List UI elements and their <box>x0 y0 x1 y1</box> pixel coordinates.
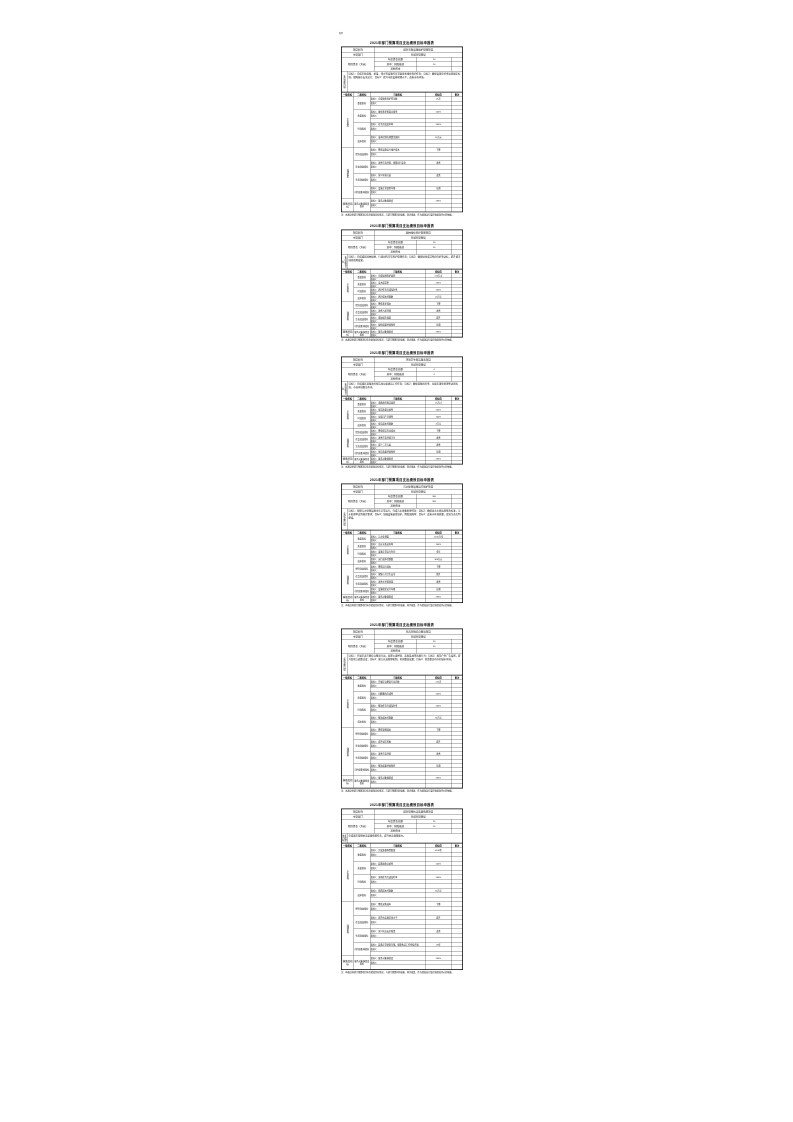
indicator-group: 时效指标指标1：任务完成及时率100%指标2： <box>354 123 463 136</box>
indicator-group: 可持续影响指标指标1：绿化成果持续保持长期指标2： <box>354 323 463 330</box>
group-label: 成本指标 <box>354 422 371 429</box>
group-rows: 指标1：整治任务完成及时率100%指标2： <box>370 704 462 716</box>
goal-section: 年度总体目标目标1：完成市政道路、桥梁、排水等设施的日常巡查和维修养护任务；目标… <box>342 72 463 93</box>
document-page: { "page": { "corner_mark": "附5" }, "comm… <box>0 0 793 1122</box>
group-rows: 指标1：降低运行成本下降指标2： <box>370 565 462 573</box>
group-label: 质量指标 <box>354 408 371 415</box>
group-rows: 指标1：提升执法规范化水平提升指标2： <box>370 916 462 930</box>
level1-section: 效益指标经济效益指标指标1：降低运行成本下降指标2：社会效益指标指标1：保障公共… <box>342 565 463 595</box>
group-label: 生态效益指标 <box>354 580 371 588</box>
group-label: 可持续影响指标 <box>354 186 371 199</box>
level1-section: 产出指标数量指标指标1：完成装备购置数量≥100件指标2：质量指标指标1：装备验… <box>342 848 463 902</box>
indicator-group: 数量指标指标1：完成维修养护任务数≥1次指标2： <box>354 97 463 110</box>
level1-label: 满意度指标 <box>342 776 354 788</box>
level1-label: 满意度指标 <box>342 457 354 464</box>
group-rows: 指标1：成本控制在预算范围内50万元指标2： <box>370 135 462 148</box>
indicator-text-empty <box>370 784 425 788</box>
indicator-group: 成本指标指标1：养护成本控制数20万元指标2： <box>354 295 463 302</box>
group-rows: 指标1：改善市容环境改善指标2： <box>370 752 462 764</box>
level1-section: 满意度指标服务对象满意度指标指标1：服务对象满意度≥95%指标2： <box>342 330 463 337</box>
indicator-group: 经济效益指标指标1：降低采购成本下降指标2： <box>354 902 463 916</box>
group-rows: 指标1：完成绿地养护面积≥10万㎡指标2： <box>370 274 462 281</box>
group-label: 经济效益指标 <box>354 302 371 309</box>
indicator-group: 服务对象满意度指标指标1：服务对象满意度≥95%指标2： <box>354 457 463 464</box>
indicator-group: 时效指标指标1：采购任务完成及时率100%指标2： <box>354 875 463 889</box>
level1-section: 产出指标数量指标指标1：污水处理量≥100万吨指标2：质量指标指标1：出水水质达… <box>342 535 463 565</box>
group-label: 可持续影响指标 <box>354 764 371 776</box>
indicator-text-empty <box>370 965 425 970</box>
table-footnote: 注：本表反映部门预算项目年度绩效目标情况，与部门预算同步编报、同步批复，作为绩效… <box>341 338 463 341</box>
declaration-table: 项目名称环境卫生保洁服务项目主管部门市城市管理局项目资金（万元）年度资金总额4其… <box>341 357 463 465</box>
indicator-row <box>370 208 462 212</box>
indicator-group: 数量指标指标1：完成装备购置数量≥100件指标2： <box>354 848 463 862</box>
group-label: 生态效益指标 <box>354 316 371 323</box>
group-rows: 指标1：整治成本控制数30万元指标2： <box>370 716 462 728</box>
goal-text: 目标1：完成城区道路清扫保洁和垃圾清运工作任务；目标2：确保道路机扫率、垃圾无害… <box>347 382 462 397</box>
group-rows: 指标1：服务对象满意度≥95%指标2： <box>370 595 462 603</box>
group-label: 数量指标 <box>354 97 371 110</box>
level1-label: 满意度指标 <box>342 199 354 212</box>
indicator-group: 生态效益指标指标1：改善市容环境改善指标2： <box>354 752 463 764</box>
group-label: 质量指标 <box>354 110 371 123</box>
group-label: 质量指标 <box>354 862 371 876</box>
level1-section: 产出指标数量指标指标1：开展综合整治行动次数≥12次指标2：质量指标指标1：问题… <box>342 680 463 728</box>
goal-text: 完成城市管理执法装备购置任务，提升执法保障能力。 <box>347 834 462 844</box>
indicator-group: 服务对象满意度指标指标1：服务对象满意度100%指标2： <box>354 956 463 970</box>
indicator-group: 质量指标指标1：出水水质达标率100%指标2： <box>354 543 463 551</box>
table-footnote: 注：本表反映部门预算项目年度绩效目标情况，与部门预算同步编报、同步批复，作为绩效… <box>341 971 463 974</box>
indicator-group: 可持续影响指标指标1：设施稳定运行年限长期指标2： <box>354 588 463 596</box>
group-label: 服务对象满意度指标 <box>354 199 371 212</box>
indicator-group: 时效指标指标1：垃圾日产日清率100%指标2： <box>354 415 463 422</box>
indicator-group: 可持续影响指标指标1：装备正常使用年限，保障执法工作持续开展≥8年指标2： <box>354 943 463 957</box>
group-column: 数量指标指标1：完成维修养护任务数≥1次指标2：质量指标指标1：维修养护质量合格… <box>354 97 463 148</box>
indicator-group: 质量指标指标1：维修养护质量合格率100%指标2： <box>354 110 463 123</box>
group-rows: 指标1：维修养护质量合格率100%指标2： <box>370 110 462 123</box>
group-label: 成本指标 <box>354 295 371 302</box>
indicator2-text: 指标2： <box>370 334 425 338</box>
fund-rows: 年度资金总额30其中：财政拨款30其他资金 <box>374 639 462 653</box>
group-rows: 指标1：完成装备购置数量≥100件指标2： <box>370 848 462 862</box>
group-rows: 指标1：减少环境污染改善指标2： <box>370 174 462 187</box>
group-rows: 指标1：保洁质量合格率100%指标2： <box>370 408 462 415</box>
group-rows: 指标1：提升城市形象提升指标2： <box>370 740 462 752</box>
indicator-group: 社会效益指标指标1：改善人居环境改善指标2： <box>354 309 463 316</box>
group-rows: 指标1：设施正常运行时间全年指标2： <box>370 550 462 558</box>
group-label: 社会效益指标 <box>354 309 371 316</box>
group-rows: 指标1：增加城市绿量提升指标2： <box>370 316 462 323</box>
group-label: 社会效益指标 <box>354 573 371 581</box>
group-rows: 指标1：出水水质达标率100%指标2： <box>370 543 462 551</box>
group-label: 数量指标 <box>354 535 371 543</box>
group-label: 质量指标 <box>354 543 371 551</box>
group-column: 数量指标指标1：污水处理量≥100万吨指标2：质量指标指标1：出水水质达标率10… <box>354 535 463 565</box>
indicator-group: 社会效益指标指标1：改善市容环境、保障出行安全改善指标2： <box>354 161 463 174</box>
indicator-group: 质量指标指标1：苗木成活率≥95%指标2： <box>354 281 463 288</box>
group-rows: 指标1：减少执法安全隐患改善指标2： <box>370 929 462 943</box>
group-label: 质量指标 <box>354 692 371 704</box>
group-label: 经济效益指标 <box>354 148 371 161</box>
fund-section: 项目资金（万元）年度资金总额50其中：财政拨款50其他资金 <box>342 819 463 833</box>
fund-rows: 年度资金总额300其中：财政拨款300其他资金 <box>374 494 462 508</box>
indicator2-text: 指标2： <box>370 599 425 603</box>
indicator-group: 数量指标指标1：完成绿地养护面积≥10万㎡指标2： <box>354 274 463 281</box>
fund-label: 项目资金（万元） <box>342 57 375 71</box>
group-label: 数量指标 <box>354 848 371 862</box>
group-rows: 指标1：降低养护成本下降指标2： <box>370 302 462 309</box>
group-label: 服务对象满意度指标 <box>354 330 371 337</box>
group-rows: 指标1：完成维修养护任务数≥1次指标2： <box>370 97 462 110</box>
level1-label: 效益指标 <box>342 902 354 956</box>
group-label: 经济效益指标 <box>354 565 371 573</box>
group-label: 数量指标 <box>354 680 371 692</box>
goal-section: 年度总体目标目标1：开展市容市貌综合整治行动，治理占道经营、乱贴乱画等违规行为；… <box>342 654 463 676</box>
group-column: 服务对象满意度指标指标1：服务对象满意度≥95%指标2： <box>354 776 463 788</box>
group-rows: 指标1：装备正常使用年限，保障执法工作持续开展≥8年指标2： <box>370 943 462 957</box>
fund-rows: 年度资金总额20其中：财政拨款20其他资金 <box>374 240 462 254</box>
indicator-group: 成本指标指标1：成本控制在预算范围内50万元指标2： <box>354 135 463 148</box>
group-rows: 指标1：保洁成本控制数4万元指标2： <box>370 422 462 429</box>
group-label: 成本指标 <box>354 558 371 566</box>
group-rows: 指标1：设施稳定运行年限长期指标2： <box>370 588 462 596</box>
level1-section: 效益指标经济效益指标指标1：降低养护成本下降指标2：社会效益指标指标1：改善人居… <box>342 302 463 330</box>
goal-section: 年度总体目标目标1：保障污水处理设施全年正常运行，完成污水收集处理任务；目标2：… <box>342 509 463 531</box>
indicator-group: 生态效益指标指标1：减少执法安全隐患改善指标2： <box>354 929 463 943</box>
indicator-group: 经济效益指标指标1：降低养护成本下降指标2： <box>354 302 463 309</box>
group-label: 社会效益指标 <box>354 740 371 752</box>
level1-label: 产出指标 <box>342 97 354 148</box>
fund-label: 项目资金（万元） <box>342 494 375 508</box>
level1-label: 满意度指标 <box>342 956 354 970</box>
group-column: 经济效益指标指标1：降低采购成本下降指标2：社会效益指标指标1：提升执法规范化水… <box>354 902 463 956</box>
group-label: 生态效益指标 <box>354 443 371 450</box>
group-label: 生态效益指标 <box>354 929 371 943</box>
indicator-text-empty <box>370 208 425 212</box>
level1-label: 满意度指标 <box>342 595 354 603</box>
level1-label: 效益指标 <box>342 302 354 330</box>
indicator-row: 指标2： <box>370 334 462 338</box>
group-label: 时效指标 <box>354 415 371 422</box>
indicator-group: 服务对象满意度指标指标1：服务对象满意度≥95%指标2： <box>354 199 463 212</box>
group-rows: 指标1：开展综合整治行动次数≥12次指标2： <box>370 680 462 692</box>
table-block: 2021年部门预算项目支出绩效目标申报表项目名称城市市政设施维护管理项目主管部门… <box>341 40 463 216</box>
declaration-table: 项目名称城市管理执法装备购置项目主管部门市城市管理局项目资金（万元）年度资金总额… <box>341 809 463 971</box>
group-rows: 指标1：采购任务完成及时率100%指标2： <box>370 875 462 889</box>
group-rows: 指标1：服务对象满意度100%指标2： <box>370 956 462 970</box>
group-label: 可持续影响指标 <box>354 450 371 457</box>
level1-section: 效益指标经济效益指标指标1：降低采购成本下降指标2：社会效益指标指标1：提升执法… <box>342 902 463 956</box>
group-label: 社会效益指标 <box>354 436 371 443</box>
goal-section: 年度总体目标完成城市管理执法装备购置任务，提升执法保障能力。 <box>342 834 463 844</box>
group-column: 服务对象满意度指标指标1：服务对象满意度≥95%指标2： <box>354 199 463 212</box>
fund-label: 项目资金（万元） <box>342 819 375 833</box>
level1-label: 效益指标 <box>342 148 354 199</box>
indicator-value-empty <box>425 599 452 603</box>
fund-section: 项目资金（万元）年度资金总额4其中：财政拨款4其他资金 <box>342 367 463 381</box>
group-label: 质量指标 <box>354 281 371 288</box>
group-label: 数量指标 <box>354 274 371 281</box>
indicator-group: 社会效益指标指标1：改善市容环境卫生改善指标2： <box>354 436 463 443</box>
remark-cell <box>452 461 463 465</box>
group-label: 经济效益指标 <box>354 902 371 916</box>
group-rows: 指标1：服务对象满意度≥95%指标2： <box>370 330 462 337</box>
indicator-value-empty <box>425 461 452 465</box>
goal-text: 目标1：完成市政道路、桥梁、排水等设施的日常巡查和维修养护任务；目标2：确保设施… <box>347 72 462 93</box>
group-label: 时效指标 <box>354 875 371 889</box>
group-label: 时效指标 <box>354 288 371 295</box>
group-rows: 指标1：整治成果持续保持长期指标2： <box>370 764 462 776</box>
group-label: 时效指标 <box>354 704 371 716</box>
group-label: 数量指标 <box>354 401 371 408</box>
group-column: 经济效益指标指标1：降低设施运行维护成本下降指标2：社会效益指标指标1：改善市容… <box>354 148 463 199</box>
group-rows: 指标1：养护任务完成及时率100%指标2： <box>370 288 462 295</box>
group-column: 服务对象满意度指标指标1：服务对象满意度≥95%指标2： <box>354 595 463 603</box>
indicator-group: 服务对象满意度指标指标1：服务对象满意度≥95%指标2： <box>354 595 463 603</box>
remark-cell <box>452 599 463 603</box>
fund-rows: 年度资金总额50其中：财政拨款50其他资金 <box>374 57 462 71</box>
level1-section: 效益指标经济效益指标指标1：降低设施运行维护成本下降指标2：社会效益指标指标1：… <box>342 148 463 199</box>
group-rows: 指标1：装备验收合格率100%指标2： <box>370 862 462 876</box>
indicator-value-empty <box>425 784 452 788</box>
fund-label: 项目资金（万元） <box>342 367 375 381</box>
group-rows: 指标1：设施正常使用年限长期指标2： <box>370 186 462 199</box>
goal-text: 目标1：完成城区园林绿地、行道树的日常养护管理任务；目标2：确保绿化成活率和完好… <box>347 255 462 270</box>
group-rows: 指标1：服务对象满意度≥95%指标2： <box>370 199 462 212</box>
indicator-group: 质量指标指标1：装备验收合格率100%指标2： <box>354 862 463 876</box>
fund-label: 项目资金（万元） <box>342 639 375 653</box>
group-column: 经济效益指标指标1：降低管理成本下降指标2：社会效益指标指标1：提升城市形象提升… <box>354 728 463 776</box>
group-label: 可持续影响指标 <box>354 943 371 957</box>
group-column: 服务对象满意度指标指标1：服务对象满意度100%指标2： <box>354 956 463 970</box>
indicator2-text: 指标2： <box>370 461 425 465</box>
group-rows: 指标1：垃圾日产日清率100%指标2： <box>370 415 462 422</box>
table-block: 2021年部门预算项目支出绩效目标申报表项目名称城市管理执法装备购置项目主管部门… <box>341 802 463 974</box>
indicator-group: 质量指标指标1：问题整改完成率100%指标2： <box>354 692 463 704</box>
declaration-table: 项目名称市容市貌综合整治项目主管部门市城市管理局项目资金（万元）年度资金总额30… <box>341 629 463 789</box>
goal-section: 年度总体目标目标1：完成城区道路清扫保洁和垃圾清运工作任务；目标2：确保道路机扫… <box>342 382 463 397</box>
group-rows: 指标1：污水处理量≥100万吨指标2： <box>370 535 462 543</box>
indicator-group: 时效指标指标1：设施正常运行时间全年指标2： <box>354 550 463 558</box>
indicator-group: 经济效益指标指标1：降低运行成本下降指标2： <box>354 565 463 573</box>
declaration-table: 项目名称城市市政设施维护管理项目主管部门市城市管理局项目资金（万元）年度资金总额… <box>341 47 463 213</box>
remark-cell <box>452 784 463 788</box>
level1-label: 产出指标 <box>342 848 354 902</box>
group-rows: 指标1：降低采购成本下降指标2： <box>370 902 462 916</box>
level1-section: 产出指标数量指标指标1：完成绿地养护面积≥10万㎡指标2：质量指标指标1：苗木成… <box>342 274 463 302</box>
group-label: 服务对象满意度指标 <box>354 595 371 603</box>
group-rows: 指标1：运行成本控制数300万元指标2： <box>370 558 462 566</box>
group-label: 经济效益指标 <box>354 429 371 436</box>
level1-label: 满意度指标 <box>342 330 354 337</box>
group-column: 服务对象满意度指标指标1：服务对象满意度≥95%指标2： <box>354 330 463 337</box>
indicator-value-empty <box>425 334 452 338</box>
group-column: 经济效益指标指标1：降低保洁作业成本下降指标2：社会效益指标指标1：改善市容环境… <box>354 429 463 457</box>
indicator-group: 成本指标指标1：整治成本控制数30万元指标2： <box>354 716 463 728</box>
level1-label: 效益指标 <box>342 565 354 595</box>
table-footnote: 注：本表反映部门预算项目年度绩效目标情况，与部门预算同步编报、同步批复，作为绩效… <box>341 789 463 792</box>
group-rows: 指标1：改善市容环境卫生改善指标2： <box>370 436 462 443</box>
indicator-group: 生态效益指标指标1：减少环境污染改善指标2： <box>354 174 463 187</box>
group-label: 生态效益指标 <box>354 752 371 764</box>
indicator-group: 数量指标指标1：道路清扫保洁面积≥5万㎡指标2： <box>354 401 463 408</box>
group-label: 社会效益指标 <box>354 161 371 174</box>
indicator-group: 社会效益指标指标1：提升执法规范化水平提升指标2： <box>354 916 463 930</box>
group-rows: 指标1：降低设施运行维护成本下降指标2： <box>370 148 462 161</box>
indicator-group: 经济效益指标指标1：降低保洁作业成本下降指标2： <box>354 429 463 436</box>
goal-text: 目标1：保障污水处理设施全年正常运行，完成污水收集处理任务；目标2：确保出水水质… <box>347 509 462 531</box>
group-column: 服务对象满意度指标指标1：服务对象满意度≥95%指标2： <box>354 457 463 464</box>
table-block: 2021年部门预算项目支出绩效目标申报表项目名称污水处理设施运行维护项目主管部门… <box>341 477 463 607</box>
level1-label: 效益指标 <box>342 728 354 776</box>
group-label: 时效指标 <box>354 123 371 136</box>
indicator-group: 质量指标指标1：保洁质量合格率100%指标2： <box>354 408 463 415</box>
fund-section: 项目资金（万元）年度资金总额300其中：财政拨款300其他资金 <box>342 494 463 508</box>
group-label: 成本指标 <box>354 889 371 903</box>
indicator-group: 成本指标指标1：保洁成本控制数4万元指标2： <box>354 422 463 429</box>
group-rows: 指标1：养护成本控制数20万元指标2： <box>370 295 462 302</box>
level1-label: 产出指标 <box>342 680 354 728</box>
indicator-group: 社会效益指标指标1：提升城市形象提升指标2： <box>354 740 463 752</box>
group-label: 经济效益指标 <box>354 728 371 740</box>
indicator-group: 成本指标指标1：购置成本控制数50万元指标2： <box>354 889 463 903</box>
indicator-row: 指标2： <box>370 599 462 603</box>
remark-cell <box>452 334 463 338</box>
remark-cell <box>452 965 463 970</box>
level1-section: 满意度指标服务对象满意度指标指标1：服务对象满意度≥95%指标2： <box>342 199 463 212</box>
indicator-value-empty <box>425 208 452 212</box>
level1-section: 满意度指标服务对象满意度指标指标1：服务对象满意度≥95%指标2： <box>342 457 463 464</box>
indicator-group: 社会效益指标指标1：保障公共卫生安全提升指标2： <box>354 573 463 581</box>
group-rows: 指标1：绿化成果持续保持长期指标2： <box>370 323 462 330</box>
table-block: 2021年部门预算项目支出绩效目标申报表项目名称园林绿化养护管理项目主管部门市城… <box>341 223 463 341</box>
group-rows: 指标1：任务完成及时率100%指标2： <box>370 123 462 136</box>
group-rows: 指标1：减少二次污染改善指标2： <box>370 443 462 450</box>
level1-label: 产出指标 <box>342 401 354 429</box>
level1-label: 产出指标 <box>342 535 354 565</box>
indicator-group: 服务对象满意度指标指标1：服务对象满意度≥95%指标2： <box>354 776 463 788</box>
group-rows: 指标1：改善水环境质量改善指标2： <box>370 580 462 588</box>
indicator-group: 经济效益指标指标1：降低管理成本下降指标2： <box>354 728 463 740</box>
declaration-table: 项目名称园林绿化养护管理项目主管部门市城市管理局项目资金（万元）年度资金总额20… <box>341 230 463 338</box>
group-column: 数量指标指标1：开展综合整治行动次数≥12次指标2：质量指标指标1：问题整改完成… <box>354 680 463 728</box>
group-label: 可持续影响指标 <box>354 588 371 596</box>
table-block: 2021年部门预算项目支出绩效目标申报表项目名称市容市貌综合整治项目主管部门市城… <box>341 622 463 792</box>
level1-section: 满意度指标服务对象满意度指标指标1：服务对象满意度≥95%指标2： <box>342 776 463 788</box>
group-label: 成本指标 <box>354 135 371 148</box>
indicator-value-empty <box>425 965 452 970</box>
goal-section: 年度总体目标目标1：完成城区园林绿地、行道树的日常养护管理任务；目标2：确保绿化… <box>342 255 463 270</box>
group-label: 社会效益指标 <box>354 916 371 930</box>
level1-section: 效益指标经济效益指标指标1：降低保洁作业成本下降指标2：社会效益指标指标1：改善… <box>342 429 463 457</box>
group-rows: 指标1：改善人居环境改善指标2： <box>370 309 462 316</box>
level1-section: 产出指标数量指标指标1：道路清扫保洁面积≥5万㎡指标2：质量指标指标1：保洁质量… <box>342 401 463 429</box>
group-label: 服务对象满意度指标 <box>354 956 371 970</box>
fund-section: 项目资金（万元）年度资金总额30其中：财政拨款30其他资金 <box>342 639 463 653</box>
indicator-row <box>370 965 462 970</box>
indicator-group: 时效指标指标1：整治任务完成及时率100%指标2： <box>354 704 463 716</box>
indicator-row <box>370 784 462 788</box>
goal-text: 目标1：开展市容市貌综合整治行动，治理占道经营、乱贴乱画等违规行为；目标2：规范… <box>347 654 462 676</box>
group-rows: 指标1：问题整改完成率100%指标2： <box>370 692 462 704</box>
indicator-group: 数量指标指标1：污水处理量≥100万吨指标2： <box>354 535 463 543</box>
remark-cell <box>452 208 463 212</box>
group-label: 服务对象满意度指标 <box>354 457 371 464</box>
indicator-row: 指标2： <box>370 461 462 465</box>
group-column: 数量指标指标1：道路清扫保洁面积≥5万㎡指标2：质量指标指标1：保洁质量合格率1… <box>354 401 463 429</box>
table-footnote: 注：本表反映部门预算项目年度绩效目标情况，与部门预算同步编报、同步批复，作为绩效… <box>341 213 463 216</box>
indicator-group: 时效指标指标1：养护任务完成及时率100%指标2： <box>354 288 463 295</box>
group-rows: 指标1：改善市容环境、保障出行安全改善指标2： <box>370 161 462 174</box>
level1-section: 满意度指标服务对象满意度指标指标1：服务对象满意度≥95%指标2： <box>342 595 463 603</box>
indicator-group: 服务对象满意度指标指标1：服务对象满意度≥95%指标2： <box>354 330 463 337</box>
group-label: 服务对象满意度指标 <box>354 776 371 788</box>
level1-label: 效益指标 <box>342 429 354 457</box>
table-block: 2021年部门预算项目支出绩效目标申报表项目名称环境卫生保洁服务项目主管部门市城… <box>341 350 463 468</box>
indicator-group: 可持续影响指标指标1：设施正常使用年限长期指标2： <box>354 186 463 199</box>
level1-section: 产出指标数量指标指标1：完成维修养护任务数≥1次指标2：质量指标指标1：维修养护… <box>342 97 463 148</box>
fund-section: 项目资金（万元）年度资金总额50其中：财政拨款50其他资金 <box>342 57 463 71</box>
table-footnote: 注：本表反映部门预算项目年度绩效目标情况，与部门预算同步编报、同步批复，作为绩效… <box>341 465 463 468</box>
group-rows: 指标1：保障公共卫生安全提升指标2： <box>370 573 462 581</box>
group-column: 经济效益指标指标1：降低运行成本下降指标2：社会效益指标指标1：保障公共卫生安全… <box>354 565 463 595</box>
fund-rows: 年度资金总额50其中：财政拨款50其他资金 <box>374 819 462 833</box>
group-label: 成本指标 <box>354 716 371 728</box>
group-rows: 指标1：购置成本控制数50万元指标2： <box>370 889 462 903</box>
indicator-group: 成本指标指标1：运行成本控制数300万元指标2： <box>354 558 463 566</box>
group-label: 时效指标 <box>354 550 371 558</box>
group-column: 数量指标指标1：完成绿地养护面积≥10万㎡指标2：质量指标指标1：苗木成活率≥9… <box>354 274 463 302</box>
group-column: 数量指标指标1：完成装备购置数量≥100件指标2：质量指标指标1：装备验收合格率… <box>354 848 463 902</box>
group-rows: 指标1：服务对象满意度≥95%指标2： <box>370 457 462 464</box>
declaration-table: 项目名称污水处理设施运行维护项目主管部门市城市管理局项目资金（万元）年度资金总额… <box>341 484 463 604</box>
indicator-group: 经济效益指标指标1：降低设施运行维护成本下降指标2： <box>354 148 463 161</box>
indicator-group: 数量指标指标1：开展综合整治行动次数≥12次指标2： <box>354 680 463 692</box>
group-rows: 指标1：道路清扫保洁面积≥5万㎡指标2： <box>370 401 462 408</box>
level1-label: 产出指标 <box>342 274 354 302</box>
indicator-group: 可持续影响指标指标1：整治成果持续保持长期指标2： <box>354 764 463 776</box>
group-rows: 指标1：保洁效果持续保持长期指标2： <box>370 450 462 457</box>
group-rows: 指标1：服务对象满意度≥95%指标2： <box>370 776 462 788</box>
table-footnote: 注：本表反映部门预算项目年度绩效目标情况，与部门预算同步编报、同步批复，作为绩效… <box>341 604 463 607</box>
group-rows: 指标1：降低保洁作业成本下降指标2： <box>370 429 462 436</box>
group-rows: 指标1：苗木成活率≥95%指标2： <box>370 281 462 288</box>
fund-label: 项目资金（万元） <box>342 240 375 254</box>
group-label: 可持续影响指标 <box>354 323 371 330</box>
level1-section: 效益指标经济效益指标指标1：降低管理成本下降指标2：社会效益指标指标1：提升城市… <box>342 728 463 776</box>
group-rows: 指标1：降低管理成本下降指标2： <box>370 728 462 740</box>
group-column: 经济效益指标指标1：降低养护成本下降指标2：社会效益指标指标1：改善人居环境改善… <box>354 302 463 330</box>
indicator-group: 生态效益指标指标1：改善水环境质量改善指标2： <box>354 580 463 588</box>
indicator-group: 生态效益指标指标1：增加城市绿量提升指标2： <box>354 316 463 323</box>
page-corner-mark: 附5 <box>339 31 343 35</box>
fund-rows: 年度资金总额4其中：财政拨款4其他资金 <box>374 367 462 381</box>
indicator-group: 可持续影响指标指标1：保洁效果持续保持长期指标2： <box>354 450 463 457</box>
indicator-group: 生态效益指标指标1：减少二次污染改善指标2： <box>354 443 463 450</box>
group-label: 生态效益指标 <box>354 174 371 187</box>
level1-section: 满意度指标服务对象满意度指标指标1：服务对象满意度100%指标2： <box>342 956 463 970</box>
fund-section: 项目资金（万元）年度资金总额20其中：财政拨款20其他资金 <box>342 240 463 254</box>
